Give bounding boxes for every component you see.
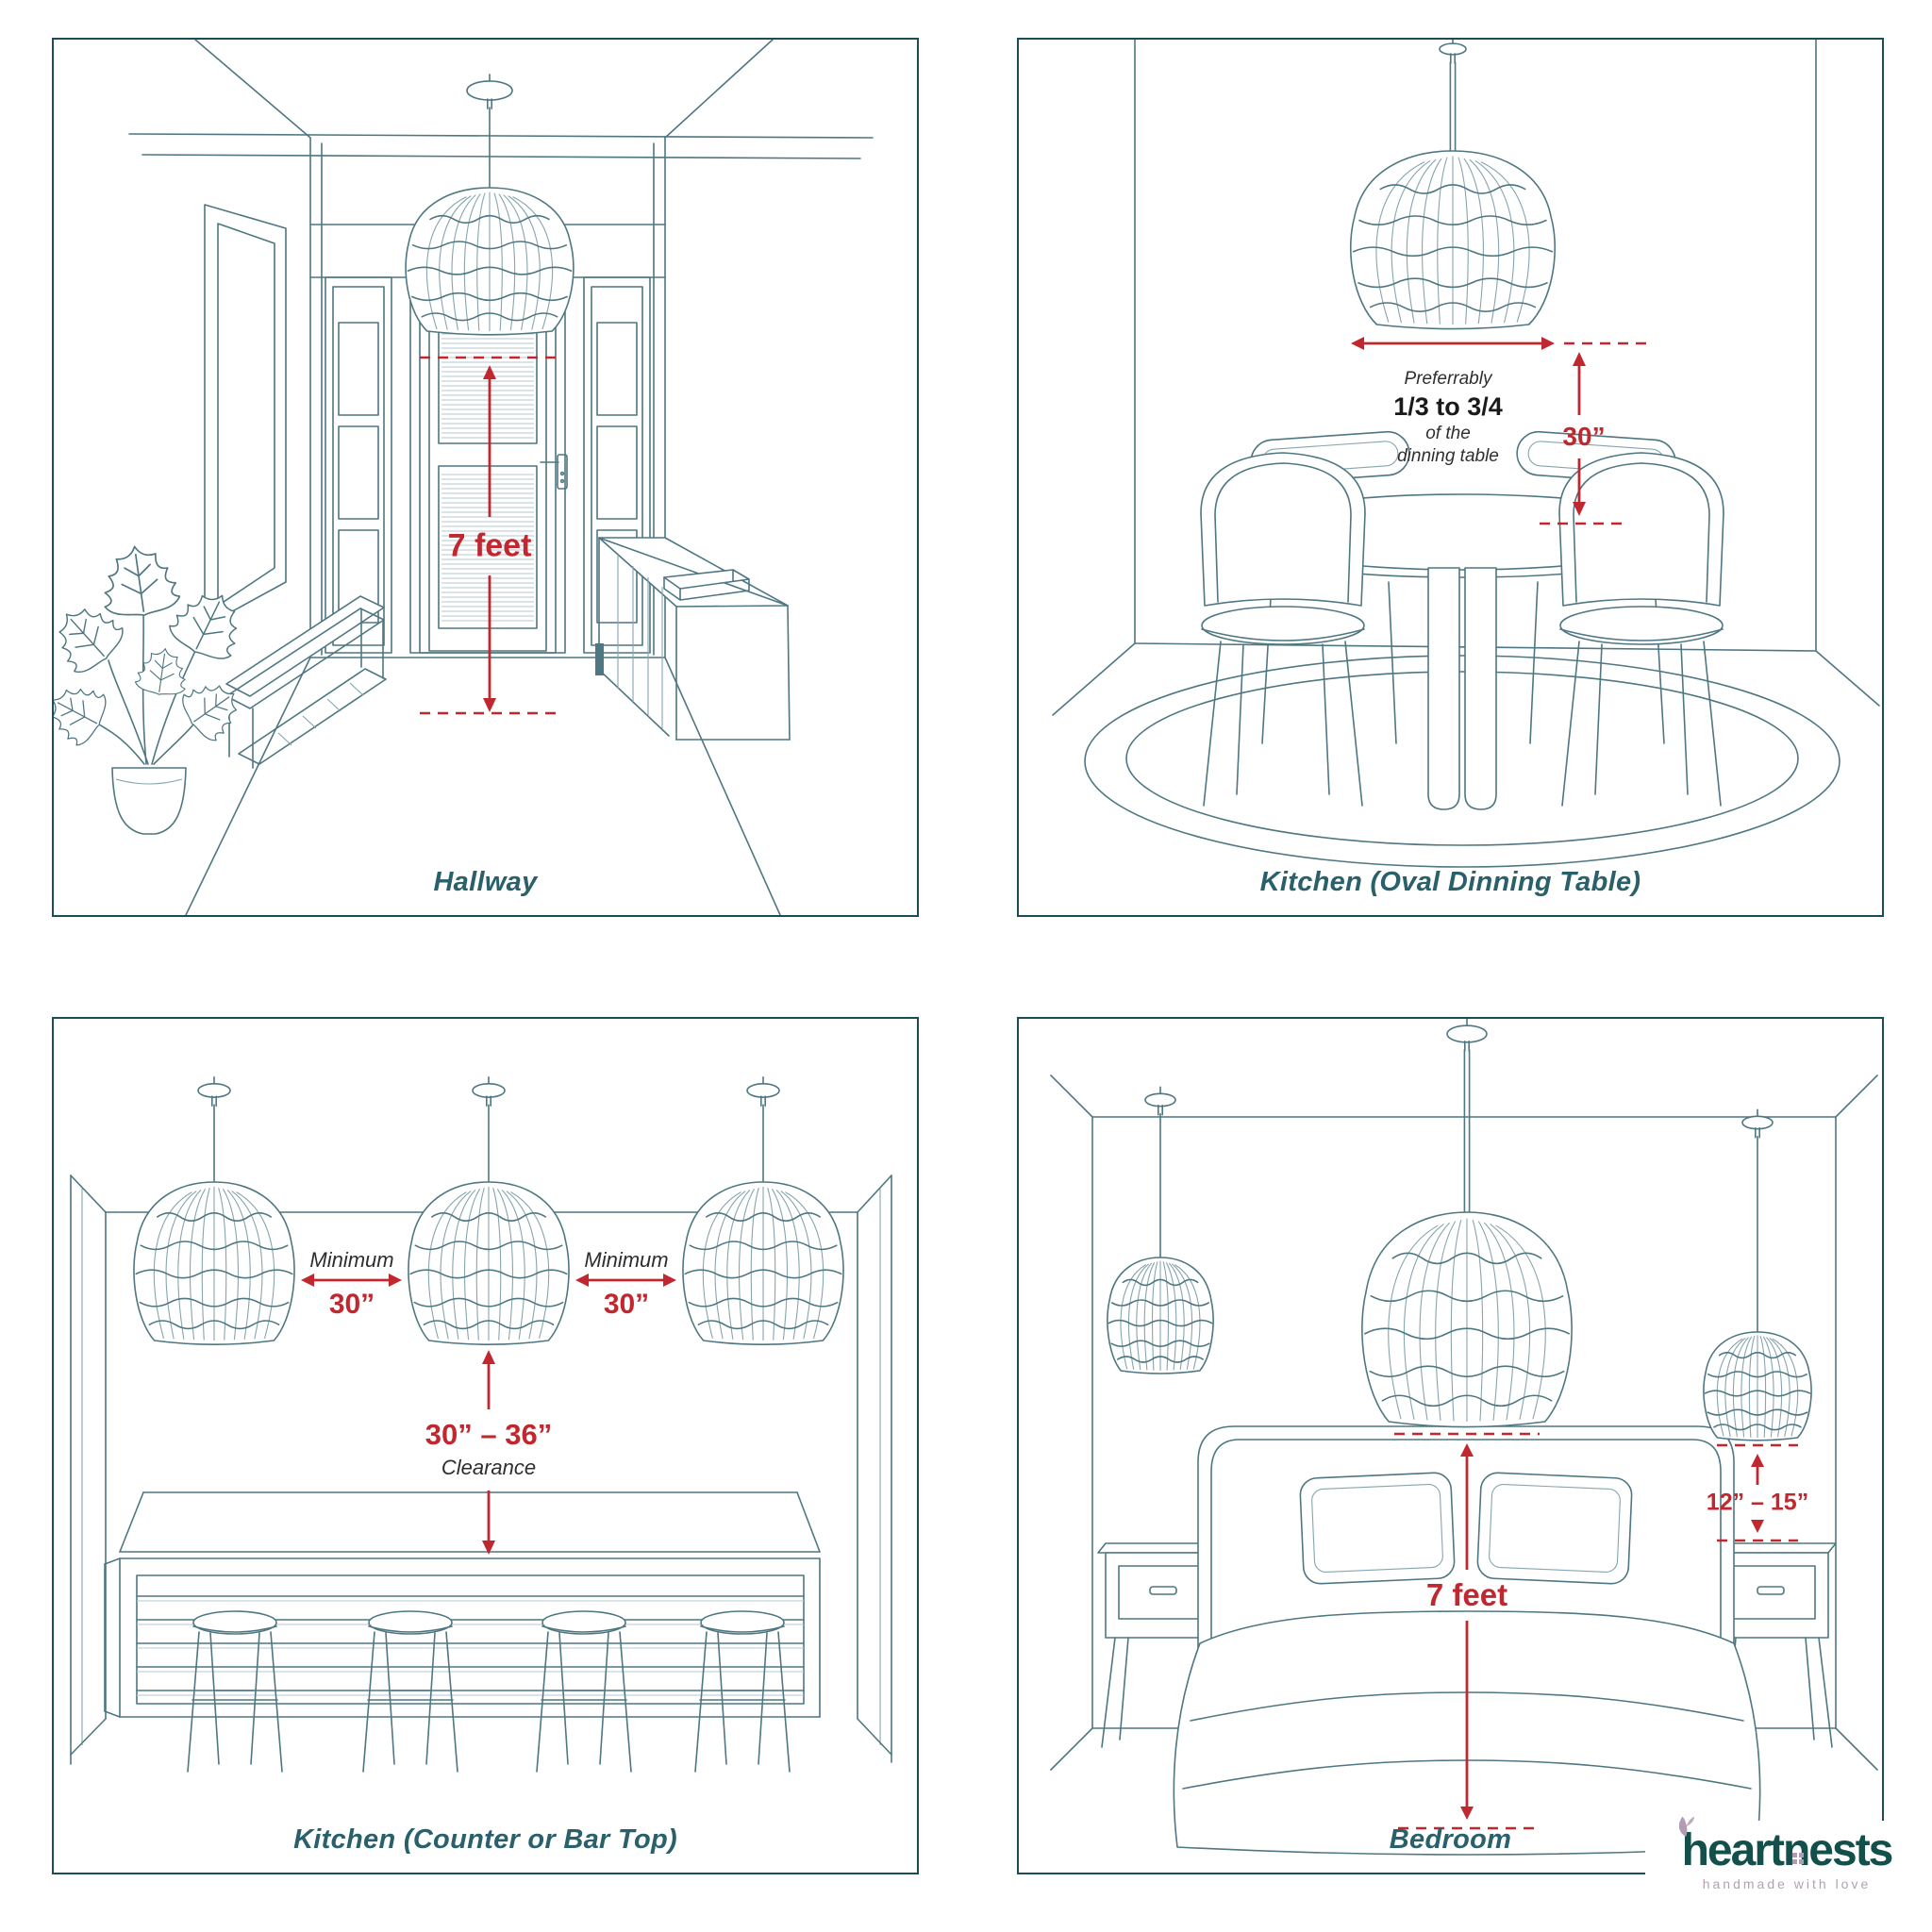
entry-bench [226,596,386,768]
min-spacing-value-left: 30” [329,1289,375,1321]
clearance-note: Clearance [441,1456,536,1480]
house-window-icon [1792,1853,1804,1864]
min-spacing-note-right: Minimum [584,1248,668,1273]
panel-hallway: 7 feet Hallway [52,38,919,917]
pendant-lamp-icon [198,1077,230,1182]
brand-wordmark: heartnests [1682,1828,1892,1874]
bedroom-illustration [1019,1019,1882,1873]
hallway-caption: Hallway [54,867,917,898]
round-rug [1085,656,1840,867]
pendant-shade-icon [683,1182,843,1344]
panel-kitchen-counter: Minimum Minimum 30” 30” 30” – 36” Cleara… [52,1017,919,1874]
bar-counter [105,1492,820,1717]
hallway-height-label: 7 feet [448,528,532,565]
pendant-width-note: Preferrably 1/3 to 3/4 of the dinning ta… [1393,368,1503,468]
pendant-lamp-icon [747,1077,779,1182]
hallway-illustration [54,40,917,915]
pendant-shade-icon [406,188,574,335]
brand-tagline: handmade with love [1645,1876,1928,1891]
panel-kitchen-oval: Preferrably 1/3 to 3/4 of the dinning ta… [1017,38,1884,917]
infographic-canvas: 7 feet Hallway [0,0,1932,1932]
min-spacing-note-left: Minimum [309,1248,393,1273]
pendant-lamp-icon [1440,40,1466,151]
bar-stools [188,1611,790,1772]
wall-mirror [205,205,286,626]
min-spacing-value-right: 30” [604,1289,649,1321]
pendant-shade-icon [134,1182,294,1344]
pendant-lamp-icon [1145,1087,1175,1257]
console-table [595,538,790,740]
bedroom-side-label: 12” – 15” [1707,1490,1808,1517]
pendant-shade-icon [408,1182,569,1344]
brand-name-text: heartnests [1682,1825,1892,1875]
table-drop-label: 30” [1562,422,1605,452]
pendant-shade-icon [1351,151,1555,329]
pendant-lamp-icon [1742,1109,1773,1332]
kitchen-oval-illustration [1019,40,1882,915]
kitchen-oval-caption: Kitchen (Oval Dinning Table) [1019,867,1882,898]
pendant-lamp-icon [473,1077,505,1182]
pendant-lamp-icon [1447,1019,1487,1212]
bedroom-height-label: 7 feet [1426,1577,1507,1613]
pendant-shade-icon [1108,1257,1213,1374]
pendant-shade-icon [1704,1332,1811,1441]
clearance-value: 30” – 36” [425,1418,552,1452]
pendant-lamp-icon [467,75,512,188]
kitchen-counter-caption: Kitchen (Counter or Bar Top) [54,1824,917,1856]
panel-bedroom: 7 feet 12” – 15” Bedroom [1017,1017,1884,1874]
brand-logo: heartnests handmade with love [1645,1821,1928,1895]
pendant-shade-icon [1362,1212,1572,1427]
